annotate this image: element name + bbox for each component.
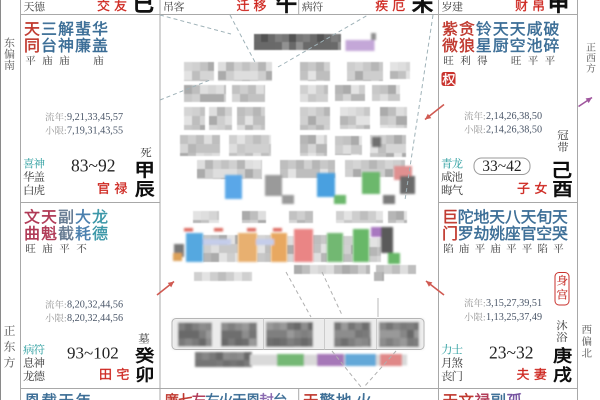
- svg-text:2,14,26,38,50: 2,14,26,38,50: [486, 125, 542, 136]
- svg-text:83~92: 83~92: [71, 156, 115, 176]
- svg-text:1,13,25,37,49: 1,13,25,37,49: [486, 312, 542, 323]
- svg-text:23~32: 23~32: [489, 343, 533, 363]
- svg-text:9,21,33,45,57: 9,21,33,45,57: [67, 112, 123, 123]
- svg-text:93~102: 93~102: [67, 344, 119, 363]
- svg-text:33~42: 33~42: [482, 158, 521, 175]
- svg-text:8,20,32,44,56: 8,20,32,44,56: [67, 313, 123, 324]
- svg-text:2,14,26,38,50: 2,14,26,38,50: [486, 111, 542, 122]
- svg-text:3,15,27,39,51: 3,15,27,39,51: [486, 298, 542, 309]
- svg-text:7,19,31,43,55: 7,19,31,43,55: [67, 126, 123, 137]
- svg-text:8,20,32,44,56: 8,20,32,44,56: [67, 300, 123, 311]
